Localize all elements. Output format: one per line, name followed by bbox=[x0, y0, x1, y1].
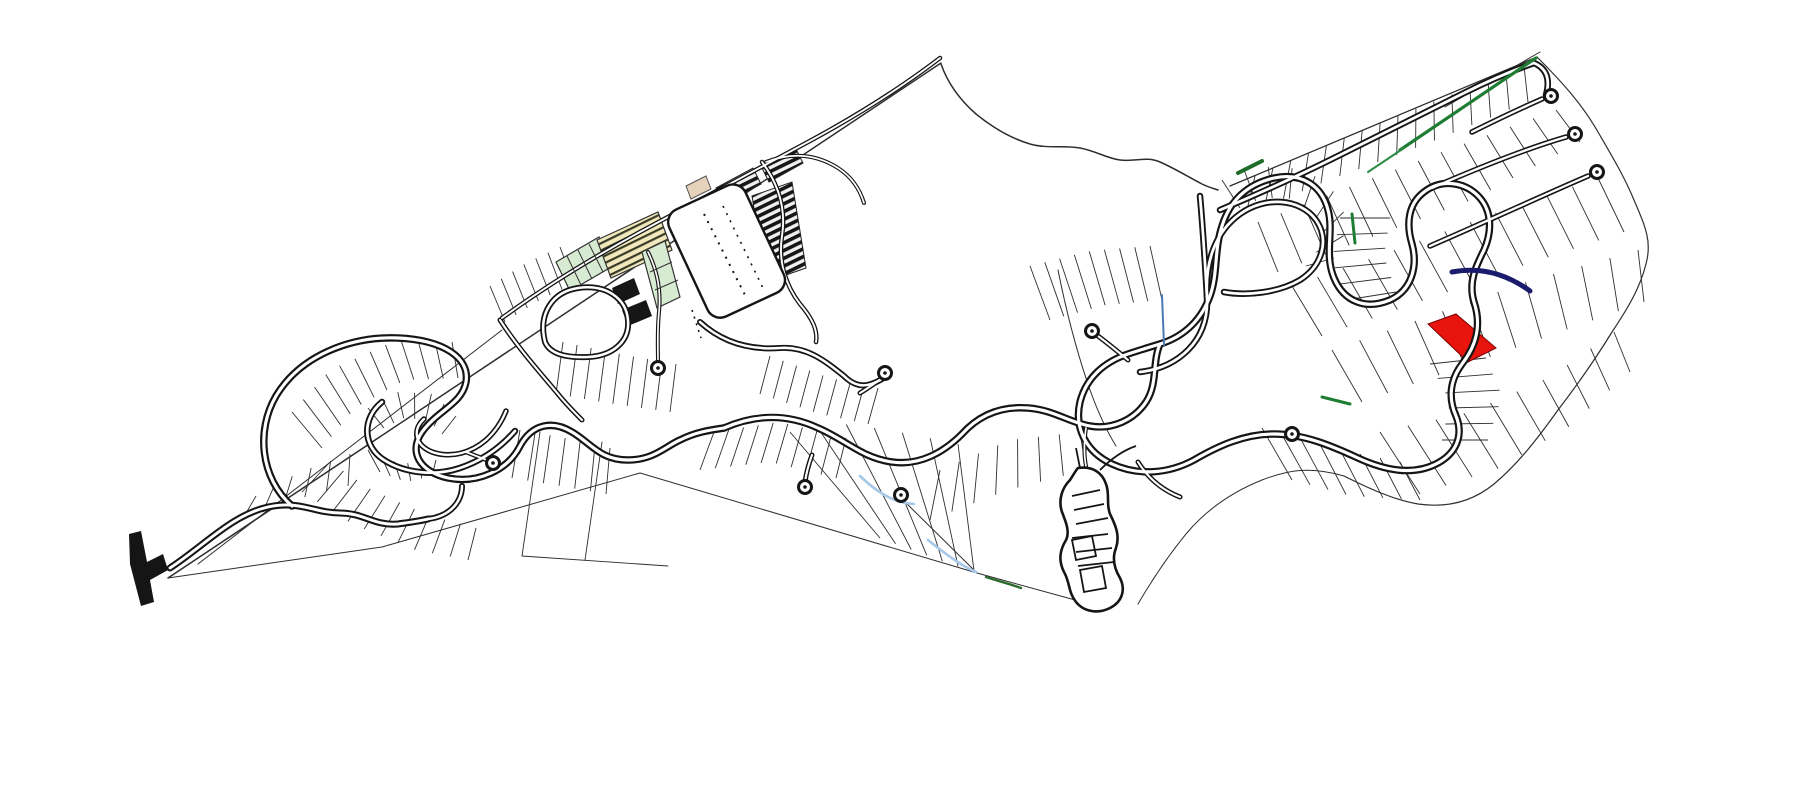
lot-line bbox=[1464, 413, 1498, 468]
boundary-line bbox=[522, 556, 668, 566]
lot-line bbox=[1089, 251, 1105, 305]
lot-line bbox=[1610, 258, 1619, 311]
lot-line bbox=[370, 352, 387, 390]
lot-line bbox=[302, 462, 330, 492]
boundary-line bbox=[198, 330, 502, 564]
culdesac-center-dot bbox=[491, 461, 495, 465]
culdesac-center-dot bbox=[656, 366, 660, 370]
color-overlay-line bbox=[928, 540, 976, 572]
lot-line bbox=[1521, 204, 1548, 257]
lot-line bbox=[355, 359, 374, 398]
boundary-line bbox=[382, 473, 640, 547]
lot-line bbox=[340, 366, 362, 405]
lot-line bbox=[1380, 432, 1420, 494]
lot-line bbox=[1030, 266, 1050, 320]
lot-line bbox=[442, 416, 456, 434]
lot-line bbox=[761, 423, 773, 463]
color-overlay-line bbox=[1238, 161, 1262, 173]
lot-line bbox=[1318, 277, 1348, 327]
lot-hatch-layer bbox=[242, 66, 1644, 571]
highlighted-lot[interactable] bbox=[1428, 314, 1496, 362]
lot-line bbox=[1292, 286, 1322, 336]
parcel-fills-layer bbox=[129, 149, 1496, 606]
color-overlay-line bbox=[1162, 295, 1164, 345]
lot-line bbox=[1335, 263, 1387, 268]
lot-line bbox=[1582, 266, 1593, 320]
lot-line bbox=[1359, 131, 1362, 169]
lot-line bbox=[773, 361, 783, 399]
lot-line bbox=[326, 375, 350, 414]
lot-line bbox=[1258, 222, 1278, 272]
lot-line bbox=[1488, 80, 1491, 117]
lot-line bbox=[813, 375, 823, 411]
lot-line bbox=[846, 424, 911, 549]
lot-line bbox=[1038, 437, 1040, 482]
lot-line bbox=[1445, 423, 1493, 424]
lot-line bbox=[952, 462, 959, 512]
lot-line bbox=[958, 444, 974, 571]
road-casing bbox=[700, 322, 882, 385]
lot-line bbox=[1372, 178, 1396, 228]
lot-line bbox=[1150, 246, 1162, 300]
lot-line bbox=[348, 454, 350, 486]
entrance-marker bbox=[129, 531, 168, 606]
lot-line bbox=[700, 432, 714, 470]
lot-line bbox=[996, 445, 998, 495]
lot-line bbox=[827, 379, 837, 415]
lot-line bbox=[575, 441, 580, 488]
lot-line bbox=[292, 412, 322, 448]
lot-line bbox=[760, 356, 770, 394]
boundary-line bbox=[1344, 57, 1648, 505]
lot-line bbox=[559, 438, 565, 486]
culdesac-center-dot bbox=[883, 371, 887, 375]
lot-line bbox=[868, 388, 878, 424]
lot-line bbox=[450, 524, 460, 557]
lot-line bbox=[1638, 250, 1644, 302]
color-overlay-line bbox=[1368, 148, 1404, 172]
lot-line bbox=[1059, 434, 1063, 475]
lot-line bbox=[1387, 331, 1413, 384]
culdesac-center-dot bbox=[1595, 170, 1599, 174]
lot-line bbox=[1524, 66, 1528, 102]
color-overlay-line bbox=[1322, 397, 1350, 404]
subdivision-plat-svg bbox=[0, 0, 1807, 800]
lot-line bbox=[1120, 249, 1134, 303]
lot-line bbox=[1289, 168, 1292, 199]
boundary-line bbox=[941, 64, 1218, 190]
culdesac-center-dot bbox=[1549, 94, 1553, 98]
lot-line bbox=[731, 428, 744, 467]
lot-line bbox=[1408, 426, 1446, 486]
lot-line bbox=[543, 435, 550, 483]
lot-line bbox=[841, 382, 851, 418]
culdesac-center-dot bbox=[1290, 432, 1294, 436]
lot-line bbox=[1104, 250, 1119, 304]
lot-line bbox=[800, 371, 810, 408]
lot-line bbox=[1572, 187, 1598, 241]
lot-line bbox=[974, 453, 979, 503]
road-core bbox=[1472, 99, 1542, 132]
lot-line bbox=[1490, 403, 1521, 455]
lot-line bbox=[381, 502, 400, 536]
lot-line bbox=[1135, 247, 1148, 301]
lot-line bbox=[333, 480, 357, 512]
lot-line bbox=[1547, 195, 1574, 248]
lot-line bbox=[1378, 124, 1380, 162]
culdesac-center-dot bbox=[1090, 329, 1094, 333]
amenity-structure-detail bbox=[1076, 448, 1080, 468]
culdesac-center-dot bbox=[899, 493, 903, 497]
lot-line bbox=[1332, 350, 1362, 402]
lot-line bbox=[1498, 292, 1516, 348]
road-core bbox=[428, 486, 462, 519]
lot-line bbox=[1430, 358, 1486, 364]
lot-line bbox=[1281, 213, 1302, 263]
lot-line bbox=[1045, 262, 1064, 316]
plat-map-canvas bbox=[0, 0, 1807, 800]
lot-line bbox=[746, 425, 759, 464]
boundary-line bbox=[522, 432, 540, 556]
lot-line bbox=[570, 345, 577, 396]
color-overlay-line bbox=[1452, 270, 1530, 291]
lot-line bbox=[1060, 259, 1078, 313]
lot-line bbox=[613, 354, 619, 404]
lot-line bbox=[715, 430, 729, 468]
lot-line bbox=[1419, 241, 1447, 292]
lot-line bbox=[1074, 255, 1091, 309]
lot-line bbox=[468, 528, 476, 560]
lot-line bbox=[1591, 348, 1610, 390]
lot-line bbox=[1360, 340, 1388, 393]
road-core bbox=[700, 322, 882, 385]
lot-line bbox=[556, 342, 563, 394]
lot-line bbox=[1334, 248, 1386, 251]
lot-line bbox=[1438, 374, 1493, 378]
lot-line bbox=[418, 342, 428, 379]
lot-line bbox=[402, 342, 414, 380]
lot-line bbox=[670, 364, 676, 412]
culdesac-center-dot bbox=[803, 485, 807, 489]
lot-line bbox=[641, 359, 647, 408]
lot-line bbox=[776, 424, 788, 464]
lot-line bbox=[1553, 274, 1567, 330]
lot-line bbox=[1340, 278, 1391, 284]
lot-line bbox=[385, 345, 399, 383]
lot-line bbox=[1598, 178, 1624, 232]
lot-line bbox=[1614, 332, 1630, 372]
culdesac-center-dot bbox=[1573, 132, 1577, 136]
lot-line bbox=[1397, 116, 1398, 155]
lot-line bbox=[787, 366, 797, 403]
lot-line bbox=[432, 520, 444, 554]
lot-line bbox=[1496, 213, 1523, 266]
lot-line bbox=[627, 356, 633, 405]
lot-line bbox=[426, 394, 432, 420]
lot-line bbox=[1543, 380, 1569, 427]
color-overlay-line bbox=[986, 577, 1021, 588]
lot-line bbox=[791, 427, 802, 467]
lot-line bbox=[398, 392, 404, 418]
